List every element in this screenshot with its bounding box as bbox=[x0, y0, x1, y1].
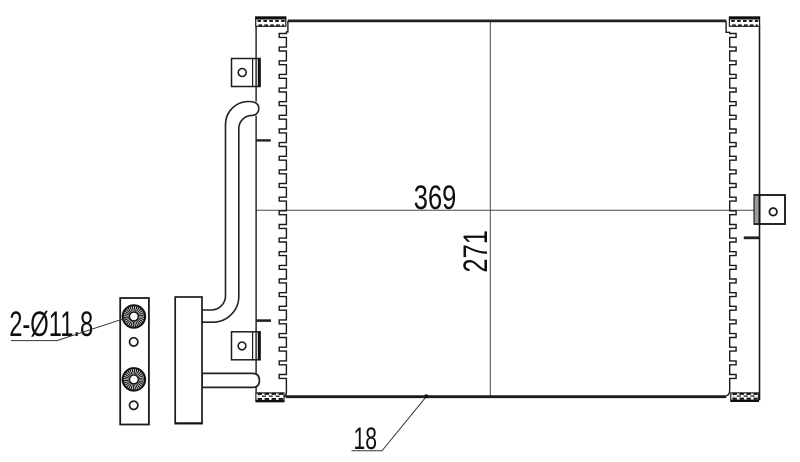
svg-text:2-Ø11.8: 2-Ø11.8 bbox=[9, 304, 93, 344]
svg-text:369: 369 bbox=[414, 179, 457, 217]
svg-text:271: 271 bbox=[457, 230, 495, 273]
